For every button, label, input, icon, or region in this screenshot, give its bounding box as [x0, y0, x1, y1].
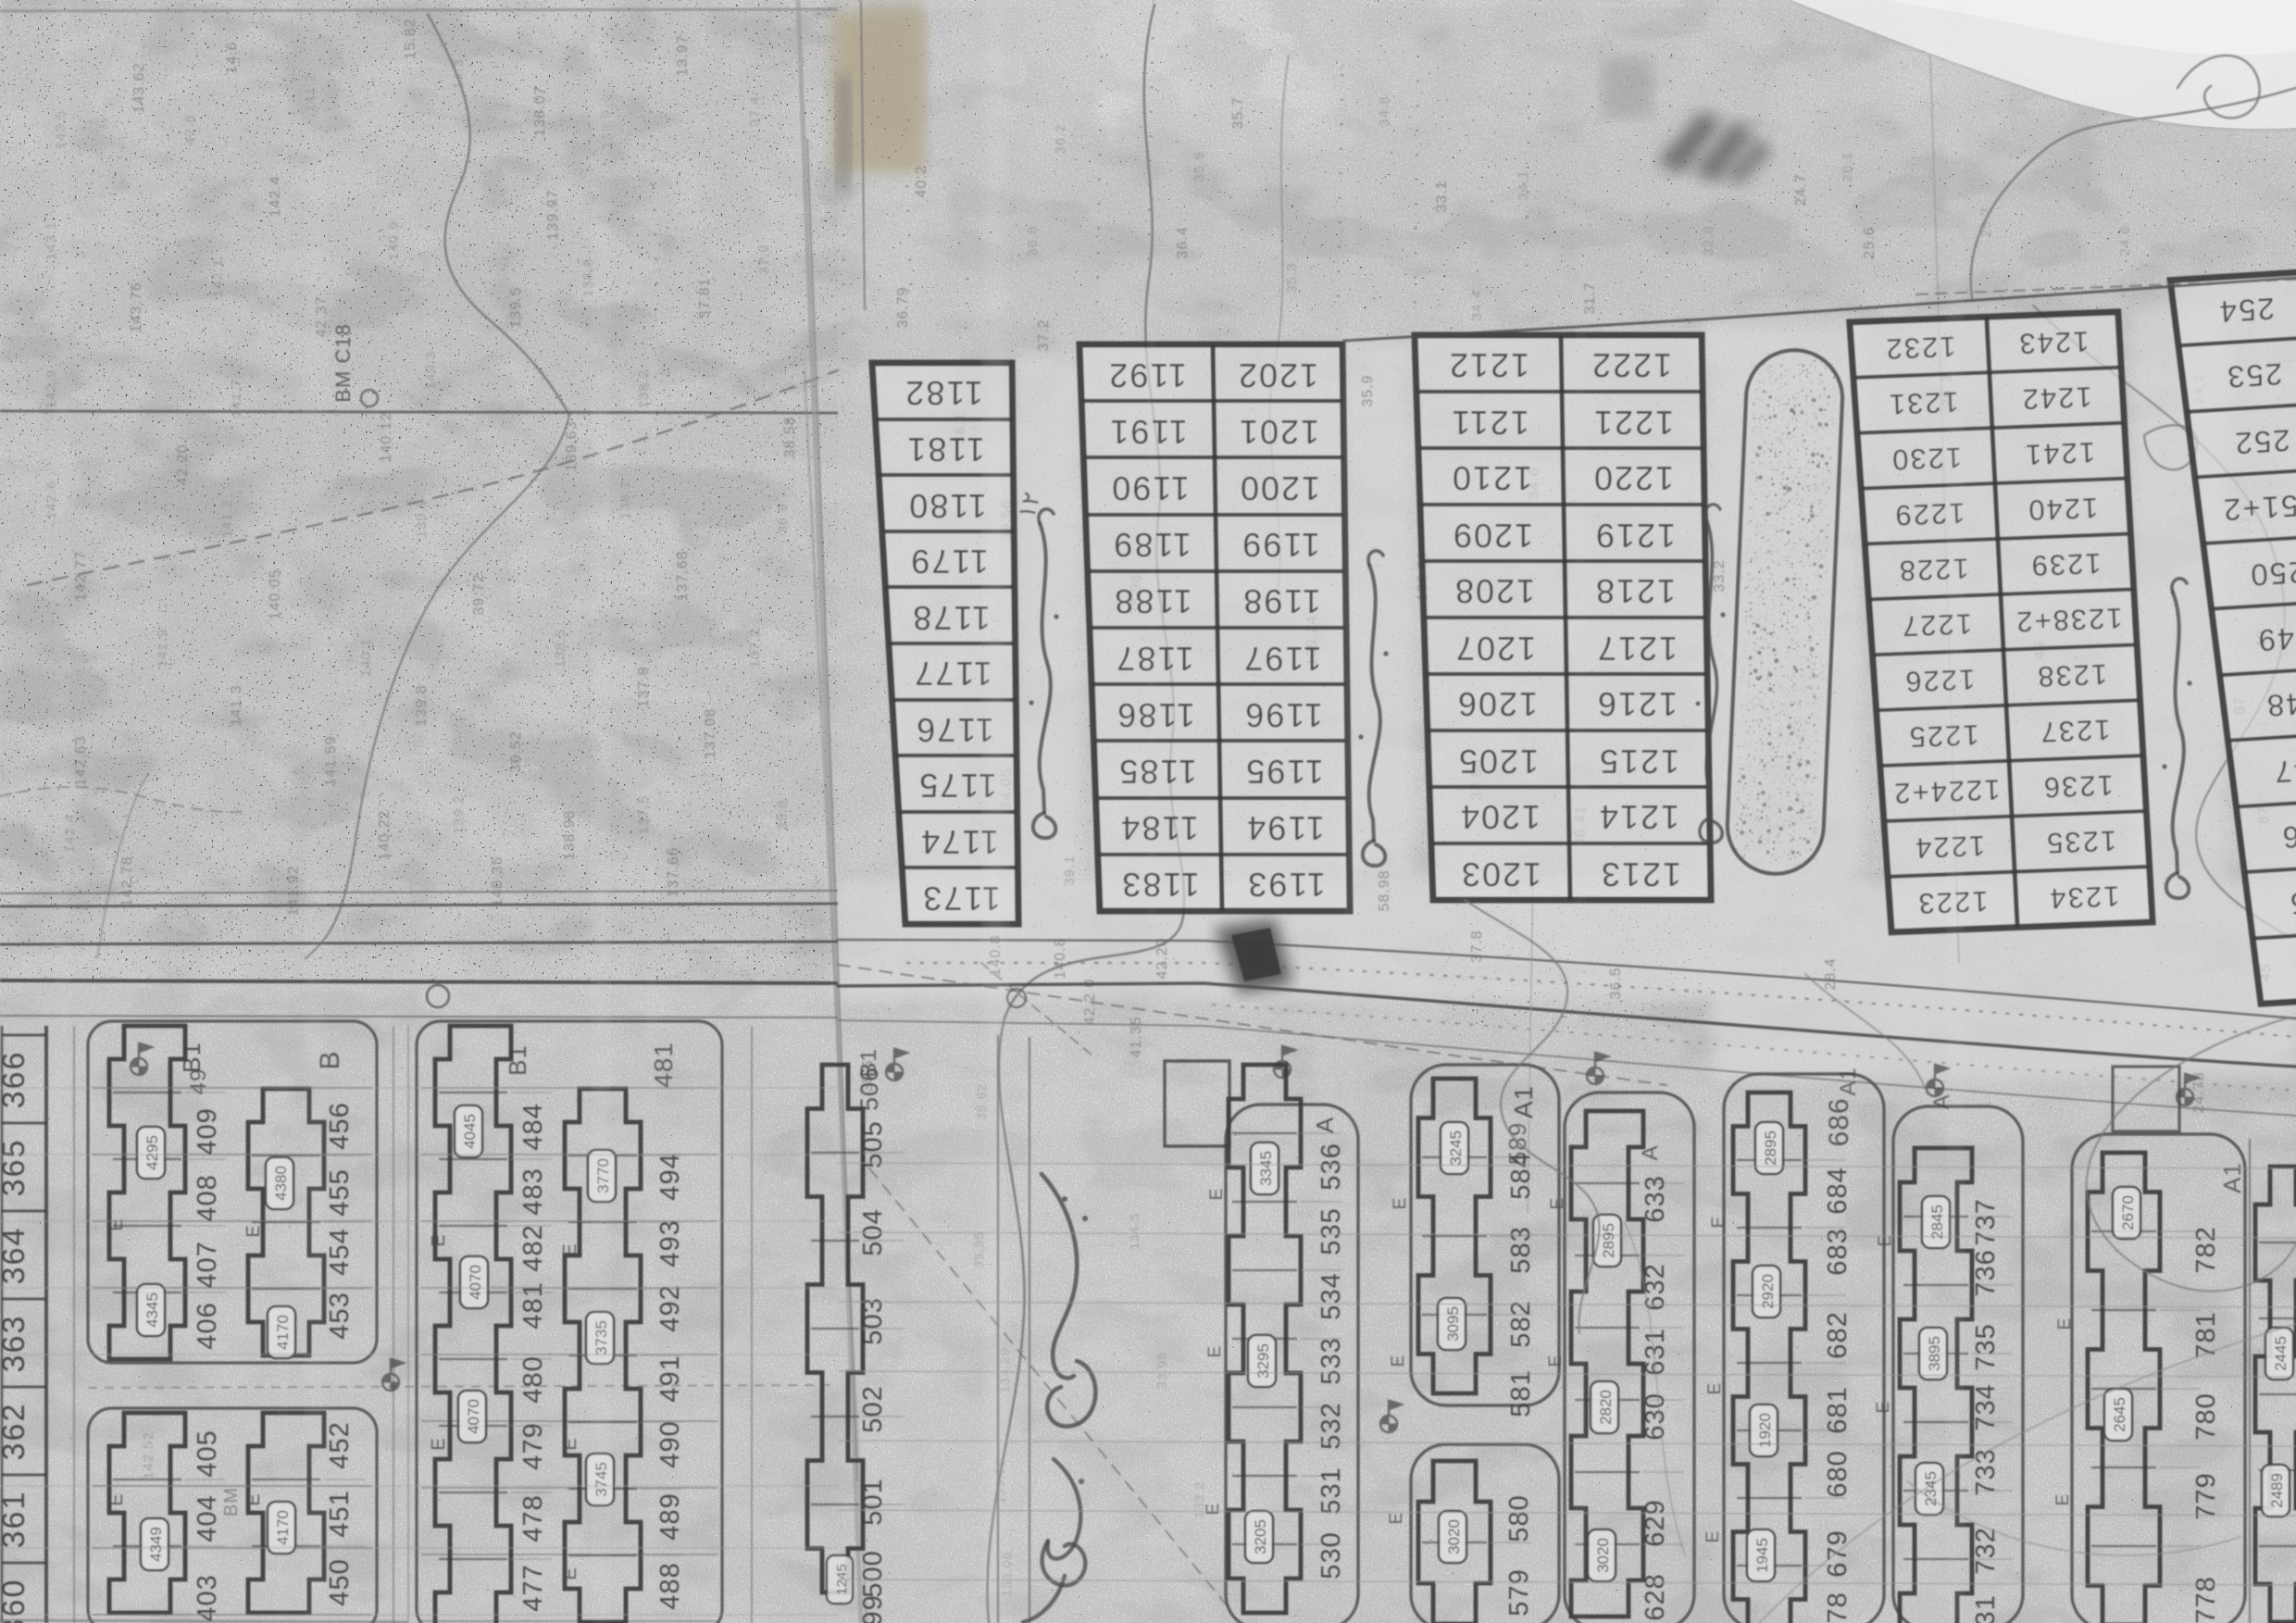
svg-text:406: 406 — [193, 1302, 222, 1349]
svg-text:38.58: 38.58 — [782, 416, 798, 457]
svg-text:633: 633 — [1641, 1175, 1670, 1222]
svg-text:1216: 1216 — [1596, 685, 1678, 723]
svg-text:778: 778 — [2191, 1576, 2221, 1623]
svg-text:142.63: 142.63 — [73, 736, 89, 787]
svg-text:138.1: 138.1 — [618, 481, 633, 520]
svg-text:736: 736 — [1971, 1249, 2001, 1296]
svg-text:536: 536 — [1316, 1142, 1346, 1190]
svg-text:141.3: 141.3 — [229, 684, 244, 726]
svg-text:140.8: 140.8 — [1053, 937, 1068, 979]
svg-text:1193: 1193 — [1246, 866, 1325, 904]
svg-text:2895: 2895 — [1600, 1223, 1617, 1258]
svg-text:58.98: 58.98 — [1377, 869, 1392, 911]
svg-text:250: 250 — [2248, 555, 2296, 593]
svg-text:456: 456 — [325, 1102, 355, 1149]
svg-text:1208: 1208 — [1454, 572, 1535, 610]
svg-text:407: 407 — [193, 1241, 222, 1288]
svg-text:580: 580 — [1504, 1494, 1534, 1542]
svg-text:731: 731 — [1971, 1594, 2001, 1623]
svg-text:1201: 1201 — [1238, 413, 1319, 451]
svg-text:B1: B1 — [504, 1044, 531, 1076]
svg-text:680: 680 — [1823, 1450, 1853, 1497]
svg-text:1206: 1206 — [1456, 685, 1538, 723]
svg-text:1179: 1179 — [909, 543, 988, 581]
svg-text:735: 735 — [1971, 1323, 2001, 1370]
svg-text:14.3: 14.3 — [451, 58, 467, 89]
svg-text:1200: 1200 — [1239, 469, 1320, 507]
svg-text:39.1: 39.1 — [1062, 855, 1078, 885]
svg-text:139.9: 139.9 — [414, 499, 430, 539]
svg-text:482: 482 — [518, 1224, 548, 1271]
svg-text:679: 679 — [1823, 1529, 1853, 1577]
svg-text:1176: 1176 — [915, 711, 993, 749]
svg-text:1232: 1232 — [1884, 331, 1956, 366]
svg-text:49: 49 — [186, 1068, 211, 1095]
svg-text:503: 503 — [858, 1297, 888, 1344]
svg-text:4045: 4045 — [461, 1114, 479, 1149]
svg-text:25.2: 25.2 — [1978, 206, 1994, 237]
svg-text:1218: 1218 — [1594, 572, 1676, 610]
svg-text:1235: 1235 — [2045, 824, 2117, 859]
svg-text:1219: 1219 — [1594, 517, 1676, 555]
svg-text:140.12: 140.12 — [379, 412, 394, 463]
svg-text:A: A — [1311, 1117, 1339, 1133]
svg-text:142.1: 142.1 — [210, 258, 226, 298]
svg-text:404: 404 — [193, 1494, 222, 1542]
svg-text:137.08: 137.08 — [703, 708, 718, 759]
svg-text:3895: 3895 — [1926, 1336, 1943, 1371]
svg-text:2489: 2489 — [2268, 1473, 2286, 1508]
svg-text:1238+2: 1238+2 — [2015, 602, 2124, 638]
svg-text:142.78: 142.78 — [119, 856, 135, 907]
svg-text:1198: 1198 — [1242, 582, 1320, 620]
svg-text:782: 782 — [2191, 1226, 2221, 1273]
svg-text:530: 530 — [1316, 1531, 1346, 1579]
svg-text:3205: 3205 — [1252, 1519, 1269, 1554]
svg-text:E: E — [560, 1243, 580, 1255]
svg-text:249: 249 — [2256, 620, 2296, 658]
svg-text:E: E — [1391, 1198, 1410, 1210]
svg-text:480: 480 — [518, 1355, 548, 1403]
svg-text:E: E — [1703, 1531, 1723, 1543]
svg-text:531: 531 — [1316, 1467, 1346, 1514]
svg-text:1217: 1217 — [1596, 630, 1678, 668]
svg-text:34.8: 34.8 — [1377, 95, 1392, 126]
svg-text:E: E — [106, 1493, 127, 1505]
svg-text:2845: 2845 — [1928, 1205, 1946, 1240]
svg-text:1242: 1242 — [2020, 381, 2092, 416]
svg-text:141.92: 141.92 — [286, 866, 302, 917]
svg-text:366: 366 — [0, 1051, 31, 1109]
svg-text:1234: 1234 — [2048, 880, 2120, 915]
svg-text:247: 247 — [2272, 752, 2296, 790]
svg-text:492: 492 — [655, 1284, 685, 1331]
svg-text:478: 478 — [518, 1494, 548, 1542]
svg-text:494: 494 — [655, 1153, 685, 1200]
svg-text:E: E — [2053, 1494, 2073, 1506]
svg-text:E: E — [560, 1438, 580, 1450]
svg-text:34.1: 34.1 — [1516, 169, 1531, 200]
svg-text:1236: 1236 — [2041, 768, 2114, 804]
svg-text:34.4: 34.4 — [1469, 290, 1485, 320]
svg-text:505: 505 — [858, 1120, 888, 1167]
svg-text:BM: BM — [221, 1487, 242, 1517]
svg-text:1238: 1238 — [2036, 658, 2108, 693]
svg-text:1220: 1220 — [1592, 459, 1674, 497]
svg-text:365: 365 — [0, 1139, 31, 1197]
svg-text:732: 732 — [1971, 1527, 2001, 1574]
svg-text:1240: 1240 — [2027, 492, 2099, 527]
svg-text:140.22: 140.22 — [377, 810, 393, 861]
svg-text:41.35: 41.35 — [1129, 1016, 1144, 1057]
svg-text:35.8: 35.8 — [775, 799, 791, 830]
svg-text:1202: 1202 — [1237, 356, 1318, 394]
svg-text:40.2: 40.2 — [914, 165, 930, 197]
svg-text:143.62: 143.62 — [131, 63, 147, 114]
svg-text:535: 535 — [1316, 1207, 1346, 1255]
svg-text:139.8: 139.8 — [414, 684, 430, 726]
svg-text:488: 488 — [655, 1562, 685, 1609]
svg-text:630: 630 — [1641, 1392, 1670, 1440]
svg-text:1243: 1243 — [2017, 325, 2090, 360]
svg-text:451: 451 — [325, 1490, 355, 1537]
svg-text:35.9: 35.9 — [1360, 374, 1376, 406]
svg-text:452: 452 — [325, 1421, 355, 1468]
svg-text:140.9: 140.9 — [386, 221, 402, 261]
svg-text:489: 489 — [655, 1492, 685, 1540]
svg-text:E: E — [429, 1234, 449, 1246]
svg-text:1182: 1182 — [904, 374, 982, 412]
svg-text:1214: 1214 — [1598, 798, 1679, 836]
svg-text:251+2: 251+2 — [2221, 487, 2296, 527]
svg-text:734: 734 — [1971, 1383, 2001, 1430]
svg-text:1180: 1180 — [907, 487, 986, 525]
svg-text:1183: 1183 — [1120, 866, 1199, 904]
svg-text:24.7: 24.7 — [1793, 173, 1809, 206]
svg-text:E: E — [1204, 1504, 1223, 1516]
svg-text:2895: 2895 — [1762, 1130, 1779, 1166]
svg-text:1203: 1203 — [1460, 855, 1541, 893]
svg-text:248: 248 — [2265, 686, 2296, 724]
svg-text:681: 681 — [1823, 1386, 1853, 1433]
svg-text:361: 361 — [0, 1491, 31, 1549]
svg-text:E: E — [1548, 1198, 1567, 1210]
svg-text:1222: 1222 — [1591, 346, 1672, 384]
svg-text:2445: 2445 — [2272, 1336, 2290, 1371]
svg-text:A1: A1 — [2218, 1162, 2246, 1193]
svg-text:781: 781 — [2191, 1311, 2221, 1358]
svg-text:1210: 1210 — [1451, 459, 1532, 497]
svg-text:1237: 1237 — [2039, 714, 2111, 749]
svg-text:682: 682 — [1823, 1311, 1853, 1358]
svg-text:493: 493 — [655, 1219, 685, 1267]
svg-text:36.4: 36.4 — [1175, 226, 1191, 258]
svg-text:1207: 1207 — [1454, 630, 1536, 668]
svg-text:686: 686 — [1824, 1097, 1854, 1146]
svg-text:1225: 1225 — [1907, 718, 1979, 754]
svg-text:36.8: 36.8 — [1025, 225, 1041, 256]
svg-text:1204: 1204 — [1459, 798, 1541, 836]
svg-text:2820: 2820 — [1597, 1390, 1615, 1425]
svg-text:500: 500 — [858, 1550, 888, 1597]
svg-text:42.20: 42.20 — [175, 443, 191, 485]
svg-text:141.2: 141.2 — [219, 499, 235, 539]
svg-text:1195: 1195 — [1244, 753, 1323, 791]
svg-text:3020: 3020 — [1445, 1519, 1463, 1554]
svg-text:254: 254 — [2217, 292, 2276, 330]
svg-text:1226: 1226 — [1903, 663, 1976, 698]
svg-text:E: E — [106, 1218, 127, 1230]
svg-text:405: 405 — [193, 1429, 222, 1477]
svg-text:139.63: 139.63 — [564, 421, 580, 472]
svg-text:1177: 1177 — [913, 655, 992, 693]
svg-text:2645: 2645 — [2111, 1397, 2128, 1432]
svg-text:E: E — [1205, 1346, 1225, 1358]
svg-text:E: E — [1387, 1513, 1406, 1525]
svg-text:1212: 1212 — [1448, 346, 1529, 384]
svg-text:142.52: 142.52 — [141, 1431, 156, 1479]
svg-text:42.20: 42.20 — [1154, 937, 1170, 979]
svg-text:1221: 1221 — [1592, 404, 1674, 442]
svg-text:B1: B1 — [856, 1048, 881, 1077]
svg-text:1192: 1192 — [1107, 356, 1186, 394]
svg-text:37.81: 37.81 — [697, 277, 713, 318]
svg-text:491: 491 — [655, 1355, 685, 1402]
svg-text:139.5: 139.5 — [508, 286, 524, 328]
svg-text:E: E — [1207, 1189, 1227, 1201]
svg-text:1205: 1205 — [1457, 743, 1539, 780]
svg-text:A1: A1 — [1836, 1067, 1861, 1095]
svg-text:3020: 3020 — [1594, 1538, 1612, 1573]
svg-text:362: 362 — [0, 1403, 31, 1461]
svg-text:E: E — [560, 1567, 580, 1579]
svg-text:13.97: 13.97 — [675, 34, 691, 76]
svg-text:36.52: 36.52 — [508, 730, 524, 772]
svg-text:3345: 3345 — [1257, 1151, 1275, 1186]
svg-text:4345: 4345 — [143, 1292, 161, 1328]
svg-text:4295: 4295 — [143, 1135, 161, 1170]
svg-text:E: E — [243, 1225, 264, 1237]
svg-text:141.7: 141.7 — [229, 379, 244, 418]
svg-text:454: 454 — [325, 1228, 355, 1275]
svg-text:533: 533 — [1316, 1337, 1346, 1384]
svg-text:35.9: 35.9 — [1192, 151, 1207, 181]
svg-text:42.8: 42.8 — [182, 114, 198, 144]
svg-text:484: 484 — [518, 1103, 548, 1150]
svg-text:E: E — [2055, 1318, 2075, 1330]
svg-text:534: 534 — [1316, 1272, 1346, 1319]
svg-text:1178: 1178 — [911, 599, 990, 637]
svg-text:25.6: 25.6 — [1862, 226, 1878, 258]
svg-text:684: 684 — [1823, 1167, 1853, 1214]
svg-text:502: 502 — [858, 1385, 888, 1432]
svg-text:140.3: 140.3 — [423, 351, 439, 391]
svg-text:E: E — [1546, 1355, 1566, 1367]
svg-text:137.66: 137.66 — [666, 847, 681, 898]
svg-text:32.8: 32.8 — [1701, 225, 1716, 256]
svg-text:E: E — [429, 1438, 449, 1450]
svg-text:1197: 1197 — [1242, 640, 1321, 678]
svg-text:1215: 1215 — [1598, 743, 1679, 780]
svg-text:450: 450 — [325, 1558, 355, 1605]
svg-text:2670: 2670 — [2119, 1195, 2137, 1230]
svg-text:142.77: 142.77 — [73, 551, 89, 602]
svg-text:364: 364 — [0, 1227, 31, 1285]
svg-text:137.2: 137.2 — [747, 629, 763, 668]
svg-text:14.6: 14.6 — [224, 41, 240, 73]
svg-text:628: 628 — [1641, 1573, 1670, 1620]
svg-text:138.5: 138.5 — [553, 629, 568, 668]
svg-text:37.9: 37.9 — [756, 243, 772, 274]
svg-text:678: 678 — [1823, 1592, 1853, 1623]
svg-text:481: 481 — [518, 1281, 548, 1329]
svg-text:1185: 1185 — [1117, 753, 1196, 791]
svg-text:134.5: 134.5 — [1127, 1213, 1142, 1250]
svg-text:683: 683 — [1823, 1228, 1853, 1275]
svg-text:455: 455 — [325, 1168, 355, 1216]
svg-text:479: 479 — [518, 1422, 548, 1469]
svg-text:139.97: 139.97 — [545, 190, 561, 241]
svg-text:409: 409 — [193, 1107, 222, 1155]
svg-text:581: 581 — [1506, 1369, 1536, 1417]
svg-text:1945: 1945 — [1753, 1538, 1771, 1573]
svg-text:33.2: 33.2 — [1712, 559, 1728, 592]
svg-text:629: 629 — [1641, 1499, 1670, 1546]
svg-text:36.79: 36.79 — [895, 286, 911, 328]
svg-text:2920: 2920 — [1759, 1274, 1777, 1309]
svg-text:4070: 4070 — [467, 1265, 484, 1300]
svg-text:583: 583 — [1506, 1226, 1536, 1273]
svg-text:4349: 4349 — [147, 1527, 165, 1562]
svg-text:36.5: 36.5 — [1608, 967, 1624, 999]
svg-text:1920: 1920 — [1756, 1413, 1774, 1448]
svg-text:483: 483 — [518, 1167, 548, 1215]
svg-text:BM C18: BM C18 — [331, 323, 355, 402]
svg-text:363: 363 — [0, 1315, 31, 1373]
svg-text:A: A — [1638, 1144, 1663, 1160]
svg-text:139.2: 139.2 — [451, 795, 467, 835]
svg-text:141.9: 141.9 — [155, 629, 170, 668]
svg-text:582: 582 — [1506, 1300, 1536, 1347]
svg-text:3245: 3245 — [1447, 1130, 1465, 1166]
svg-text:733: 733 — [1971, 1448, 2001, 1495]
svg-text:779: 779 — [2191, 1472, 2221, 1519]
svg-text:579: 579 — [1504, 1568, 1534, 1616]
svg-text:E: E — [1389, 1355, 1408, 1367]
svg-text:1196: 1196 — [1243, 696, 1322, 734]
svg-text:1239: 1239 — [2029, 547, 2102, 582]
svg-text:780: 780 — [2191, 1392, 2221, 1440]
svg-text:3095: 3095 — [1444, 1306, 1462, 1342]
svg-text:408: 408 — [193, 1174, 222, 1221]
svg-text:1209: 1209 — [1452, 517, 1533, 555]
svg-text:1181: 1181 — [905, 431, 984, 468]
svg-text:252: 252 — [2233, 423, 2291, 461]
svg-text:501: 501 — [858, 1478, 888, 1525]
svg-text:1211: 1211 — [1450, 404, 1529, 442]
svg-text:36.9: 36.9 — [775, 503, 791, 533]
svg-text:26.1: 26.1 — [1840, 151, 1855, 181]
svg-text:1199: 1199 — [1241, 526, 1319, 564]
svg-text:1194: 1194 — [1245, 809, 1324, 847]
svg-text:140.1: 140.1 — [358, 638, 374, 678]
svg-text:35.3: 35.3 — [1284, 262, 1300, 293]
svg-text:499: 499 — [858, 1594, 888, 1623]
svg-text:137.68: 137.68 — [675, 551, 691, 602]
svg-text:33.1: 33.1 — [1434, 180, 1450, 212]
svg-text:4070: 4070 — [465, 1399, 482, 1434]
svg-text:360: 360 — [0, 1579, 31, 1623]
svg-text:15.82: 15.82 — [403, 18, 418, 59]
svg-text:246: 246 — [2280, 818, 2296, 855]
svg-text:35.7: 35.7 — [1230, 96, 1246, 129]
svg-text:490: 490 — [655, 1420, 685, 1467]
svg-text:37.2: 37.2 — [1036, 318, 1052, 351]
svg-text:39.72: 39.72 — [471, 573, 487, 615]
svg-text:36.2: 36.2 — [1053, 123, 1068, 154]
svg-text:24.6: 24.6 — [2117, 225, 2133, 256]
svg-text:253: 253 — [2225, 357, 2283, 395]
svg-text:28.4: 28.4 — [1823, 957, 1839, 990]
svg-text:1241: 1241 — [2023, 436, 2095, 471]
svg-text:A1: A1 — [1509, 1085, 1538, 1118]
svg-text:E: E — [1709, 1217, 1728, 1229]
svg-text:E: E — [243, 1493, 264, 1505]
svg-text:E: E — [1874, 1402, 1893, 1414]
svg-text:1224+2: 1224+2 — [1892, 773, 2002, 809]
svg-text:143.76: 143.76 — [129, 282, 144, 333]
svg-text:1213: 1213 — [1600, 855, 1681, 893]
svg-text:140.35: 140.35 — [490, 856, 505, 907]
svg-text:737: 737 — [1971, 1198, 2001, 1245]
svg-text:138.07: 138.07 — [532, 86, 548, 137]
svg-text:477: 477 — [518, 1564, 548, 1611]
svg-text:E: E — [1705, 1383, 1725, 1395]
svg-text:33.98: 33.98 — [1154, 1352, 1169, 1389]
svg-text:1184: 1184 — [1119, 809, 1198, 847]
svg-text:138.98: 138.98 — [562, 810, 578, 861]
svg-text:453: 453 — [325, 1292, 355, 1339]
svg-text:37.4: 37.4 — [747, 95, 763, 126]
